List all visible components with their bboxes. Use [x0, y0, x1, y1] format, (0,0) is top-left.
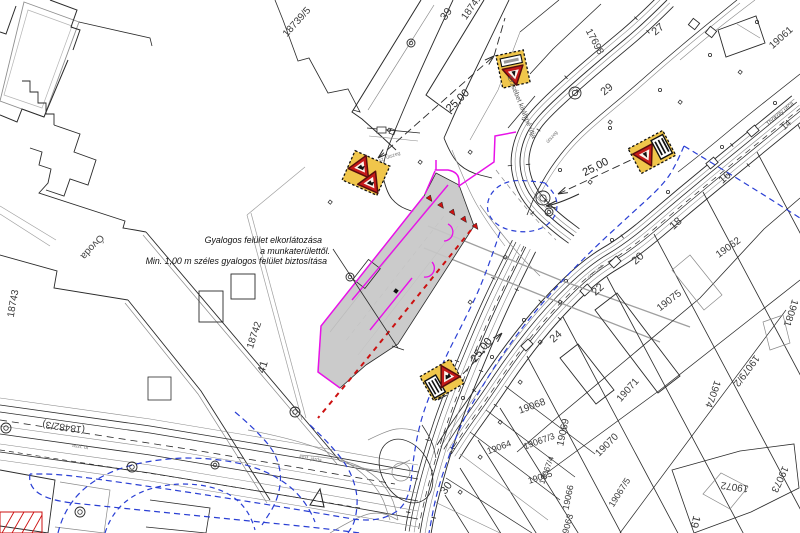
svg-text:Min. 1,00 m széles gyalogos fe: Min. 1,00 m széles gyalogos felület bizt…	[146, 256, 328, 266]
svg-text:a munkaterülettől.: a munkaterülettől.	[260, 246, 330, 256]
svg-text:Gyalogos felület elkorlátozás: Gyalogos felület elkorlátozása	[205, 235, 322, 245]
